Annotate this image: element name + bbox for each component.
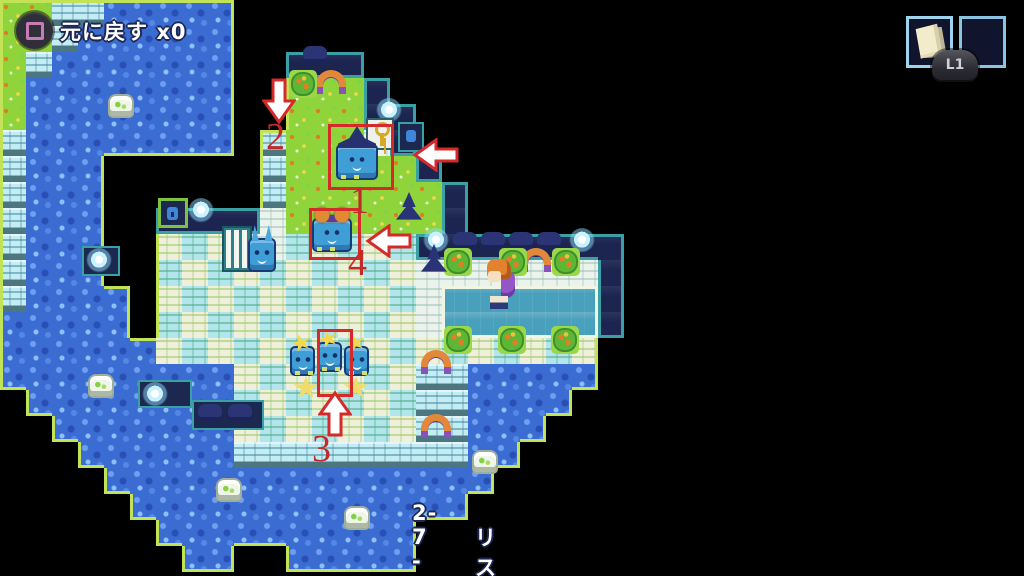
annotation-arrow-left-icon — [365, 224, 413, 258]
annotation-highlight-box — [317, 329, 353, 397]
annotation-number-2: 2 — [266, 118, 285, 156]
annotation-layer: 1234 — [0, 0, 1024, 576]
undo-label-group: 元に戻す x0 — [60, 16, 186, 46]
undo-label: 元に戻す — [60, 20, 148, 44]
square-glyph — [26, 22, 44, 40]
undo-count: x0 — [156, 20, 186, 44]
game-screen: 1234 元に戻す x0 L1 2-7 - ムーブオーバー リスタート — [0, 0, 1024, 576]
restart-label: リスタート — [475, 522, 497, 576]
square-button-icon — [16, 12, 53, 49]
annotation-arrow-left-icon — [412, 138, 460, 172]
annotation-number-4: 4 — [348, 244, 367, 282]
annotation-number-1: 1 — [350, 182, 369, 220]
l1-button-icon: L1 — [932, 50, 978, 80]
journal-panel[interactable]: L1 — [906, 16, 1010, 86]
undo-prompt[interactable]: 元に戻す x0 — [16, 12, 186, 49]
annotation-number-3: 3 — [312, 430, 331, 468]
